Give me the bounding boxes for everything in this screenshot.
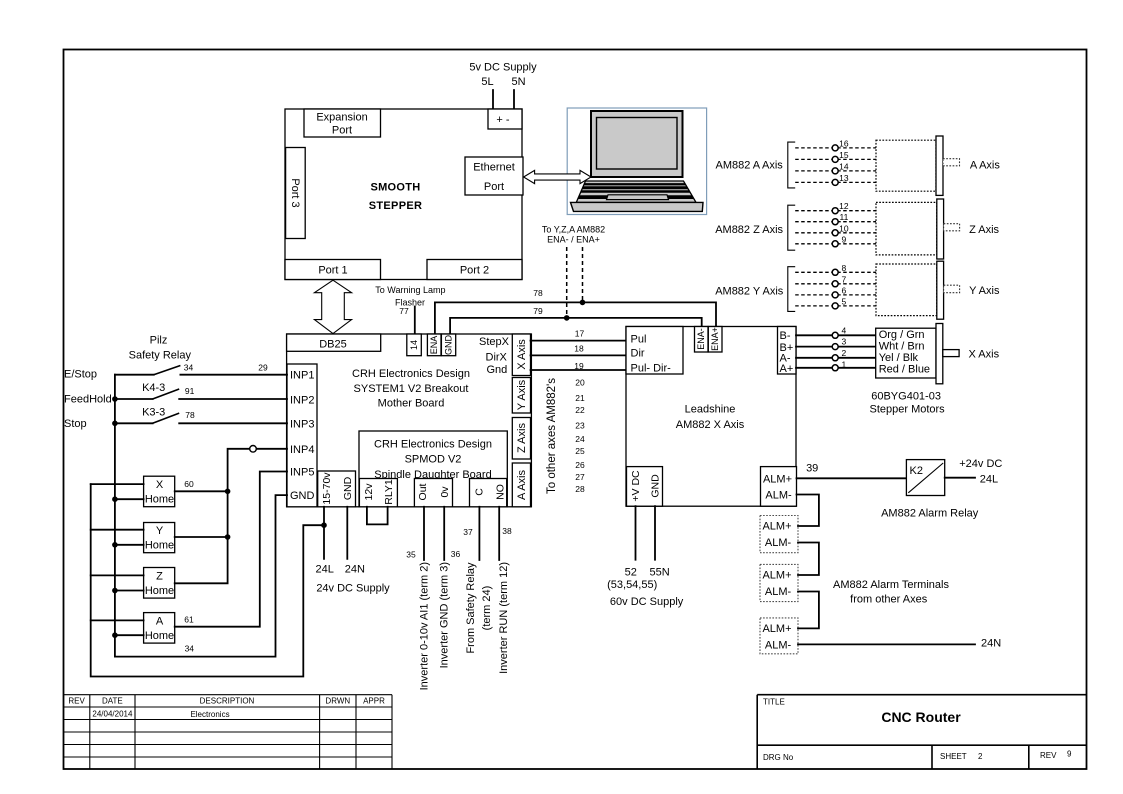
svg-text:Home: Home — [145, 494, 174, 506]
svg-text:E/Stop: E/Stop — [64, 369, 97, 381]
svg-text:60BYG401-03: 60BYG401-03 — [871, 390, 941, 402]
svg-text:10: 10 — [839, 223, 849, 233]
svg-text:CRH Electronics Design: CRH Electronics Design — [374, 439, 492, 451]
svg-text:Y Axis: Y Axis — [969, 285, 1000, 297]
svg-text:AM882 Y Axis: AM882 Y Axis — [715, 285, 784, 297]
svg-text:25: 25 — [575, 446, 585, 456]
svg-text:24L: 24L — [316, 564, 334, 576]
svg-text:ALM-: ALM- — [765, 639, 792, 651]
svg-text:ALM+: ALM+ — [762, 570, 791, 582]
svg-text:37: 37 — [463, 527, 473, 537]
svg-text:(term 24): (term 24) — [481, 586, 493, 631]
svg-text:DB25: DB25 — [319, 338, 347, 350]
svg-text:Z Axis: Z Axis — [516, 423, 528, 453]
svg-text:12: 12 — [839, 201, 849, 211]
svg-text:Port 2: Port 2 — [460, 265, 489, 277]
svg-text:34: 34 — [185, 644, 195, 654]
svg-text:To Warning Lamp: To Warning Lamp — [375, 285, 445, 295]
svg-text:7: 7 — [842, 274, 847, 284]
svg-text:A: A — [156, 615, 164, 627]
svg-text:18: 18 — [574, 343, 584, 353]
svg-text:29: 29 — [258, 363, 268, 373]
svg-text:4: 4 — [842, 325, 847, 335]
svg-text:GND: GND — [342, 476, 354, 500]
svg-text:0v: 0v — [439, 486, 451, 498]
svg-text:34: 34 — [184, 362, 194, 372]
svg-text:3: 3 — [842, 337, 847, 347]
svg-text:DRG No: DRG No — [763, 753, 794, 762]
svg-text:REV: REV — [68, 697, 85, 706]
svg-text:ALM-: ALM- — [765, 490, 792, 502]
svg-text:GND: GND — [444, 335, 454, 356]
svg-text:78: 78 — [533, 288, 543, 298]
svg-text:+V DC: +V DC — [630, 470, 642, 502]
svg-text:B-: B- — [780, 330, 791, 342]
svg-text:APPR: APPR — [363, 697, 385, 706]
svg-text:Home: Home — [145, 630, 174, 642]
svg-text:SMOOTH: SMOOTH — [370, 182, 420, 194]
svg-text:from other Axes: from other Axes — [850, 594, 928, 606]
svg-text:13: 13 — [839, 173, 849, 183]
svg-text:Pul- Dir-: Pul- Dir- — [631, 363, 672, 375]
svg-text:9: 9 — [842, 234, 847, 244]
svg-text:NO: NO — [494, 484, 506, 500]
svg-text:5L: 5L — [481, 76, 493, 88]
svg-text:2: 2 — [978, 752, 983, 761]
svg-text:5N: 5N — [511, 76, 525, 88]
svg-text:91: 91 — [185, 386, 195, 396]
svg-text:X: X — [156, 479, 164, 491]
svg-text:DRWN: DRWN — [325, 697, 350, 706]
svg-text:CRH Electronics Design: CRH Electronics Design — [352, 368, 470, 380]
svg-text:24v DC Supply: 24v DC Supply — [316, 583, 390, 595]
svg-text:Org / Grn: Org / Grn — [879, 329, 925, 341]
svg-text:6: 6 — [842, 285, 847, 295]
svg-text:11: 11 — [839, 212, 848, 222]
svg-text:5v DC Supply: 5v DC Supply — [469, 62, 537, 74]
svg-text:61: 61 — [184, 615, 194, 625]
svg-text:K4-3: K4-3 — [142, 382, 165, 394]
svg-text:DirX: DirX — [486, 352, 508, 364]
svg-text:CNC Router: CNC Router — [881, 709, 961, 725]
svg-text:AM882 Alarm Terminals: AM882 Alarm Terminals — [833, 579, 949, 591]
svg-text:ALM+: ALM+ — [763, 474, 792, 486]
svg-text:Port 1: Port 1 — [318, 265, 347, 277]
svg-text:GND: GND — [650, 474, 662, 498]
svg-text:27: 27 — [575, 472, 585, 482]
svg-text:ALM+: ALM+ — [762, 521, 791, 533]
svg-text:1: 1 — [842, 360, 847, 370]
svg-text:Red / Blue: Red / Blue — [879, 364, 930, 376]
svg-text:AM882 Z Axis: AM882 Z Axis — [715, 224, 783, 236]
svg-text:39: 39 — [806, 463, 818, 475]
svg-text:28: 28 — [575, 484, 585, 494]
svg-text:SPMOD V2: SPMOD V2 — [405, 454, 462, 466]
svg-text:StepX: StepX — [479, 336, 510, 348]
svg-text:Expansion: Expansion — [316, 112, 367, 124]
svg-text:ENA-: ENA- — [696, 328, 706, 350]
svg-text:79: 79 — [533, 306, 543, 316]
svg-text:GND: GND — [290, 490, 315, 502]
svg-text:INP1: INP1 — [290, 370, 314, 382]
svg-text:C: C — [474, 488, 486, 496]
svg-text:REV: REV — [1040, 751, 1057, 760]
svg-text:INP5: INP5 — [290, 467, 314, 479]
svg-text:Y: Y — [156, 525, 164, 537]
svg-text:77: 77 — [399, 306, 409, 316]
svg-text:55N: 55N — [650, 566, 670, 578]
svg-text:ALM-: ALM- — [765, 537, 792, 549]
svg-text:Mother Board: Mother Board — [378, 398, 445, 410]
svg-text:A Axis: A Axis — [970, 159, 1000, 171]
svg-text:+ -: + - — [496, 114, 509, 126]
svg-text:24: 24 — [575, 434, 585, 444]
svg-text:Out: Out — [417, 483, 429, 500]
svg-text:60: 60 — [184, 479, 194, 489]
svg-text:Inverter GND (term 3): Inverter GND (term 3) — [439, 562, 451, 668]
svg-text:X Axis: X Axis — [516, 339, 528, 370]
svg-text:Port: Port — [484, 181, 504, 193]
svg-text:TITLE: TITLE — [763, 698, 785, 707]
svg-text:14: 14 — [409, 340, 419, 350]
svg-text:26: 26 — [575, 460, 585, 470]
svg-text:Home: Home — [145, 585, 174, 597]
svg-text:Gnd: Gnd — [487, 364, 508, 376]
svg-text:ALM+: ALM+ — [762, 623, 791, 635]
svg-text:24N: 24N — [981, 638, 1001, 650]
svg-text:16: 16 — [839, 138, 849, 148]
svg-text:Safety Relay: Safety Relay — [129, 350, 192, 362]
svg-text:17: 17 — [575, 328, 585, 338]
svg-text:22: 22 — [575, 405, 585, 415]
svg-text:To other axes AM882's: To other axes AM882's — [546, 378, 558, 494]
svg-text:24L: 24L — [980, 473, 998, 485]
svg-text:(53,54,55): (53,54,55) — [607, 579, 657, 591]
svg-text:Inverter 0-10v AI1 (term 2): Inverter 0-10v AI1 (term 2) — [419, 562, 431, 690]
svg-text:ENA+: ENA+ — [710, 327, 720, 351]
svg-text:36: 36 — [451, 549, 461, 559]
svg-text:Y Axis: Y Axis — [516, 379, 528, 410]
svg-text:DATE: DATE — [102, 697, 123, 706]
svg-text:K2: K2 — [910, 465, 923, 477]
svg-text:Leadshine: Leadshine — [685, 404, 736, 416]
svg-text:AM882 A Axis: AM882 A Axis — [716, 159, 784, 171]
svg-text:20: 20 — [575, 378, 585, 388]
svg-text:Wht / Brn: Wht / Brn — [879, 341, 925, 353]
svg-text:Dir: Dir — [631, 348, 645, 360]
svg-text:K3-3: K3-3 — [142, 406, 165, 418]
svg-text:ALM-: ALM- — [765, 586, 792, 598]
svg-text:23: 23 — [575, 420, 585, 430]
svg-text:Z Axis: Z Axis — [969, 224, 999, 236]
svg-text:From Safety Relay: From Safety Relay — [465, 562, 477, 654]
svg-text:Pul: Pul — [631, 334, 647, 346]
svg-text:DESCRIPTION: DESCRIPTION — [200, 697, 255, 706]
svg-text:Z: Z — [156, 570, 163, 582]
svg-text:FeedHold: FeedHold — [64, 394, 112, 406]
svg-text:5: 5 — [842, 296, 847, 306]
svg-text:21: 21 — [575, 393, 585, 403]
svg-text:15-70v: 15-70v — [321, 472, 333, 505]
svg-text:19: 19 — [574, 361, 584, 371]
svg-text:9: 9 — [1067, 750, 1072, 759]
svg-text:AM882 Alarm Relay: AM882 Alarm Relay — [881, 508, 979, 520]
svg-text:15: 15 — [839, 150, 849, 160]
svg-text:INP3: INP3 — [290, 419, 314, 431]
svg-text:35: 35 — [406, 550, 416, 560]
svg-text:12v: 12v — [363, 483, 375, 501]
svg-text:A Axis: A Axis — [516, 470, 528, 500]
svg-text:52: 52 — [625, 566, 637, 578]
svg-text:To Y,Z,A AM882: To Y,Z,A AM882 — [542, 224, 605, 234]
svg-text:38: 38 — [502, 526, 512, 536]
svg-text:Port: Port — [332, 125, 352, 137]
svg-text:X Axis: X Axis — [969, 348, 1000, 360]
svg-text:8: 8 — [842, 263, 847, 273]
svg-text:ENA- / ENA+: ENA- / ENA+ — [547, 234, 600, 244]
svg-text:Yel / Blk: Yel / Blk — [879, 352, 919, 364]
svg-text:A+: A+ — [780, 363, 794, 375]
svg-text:Inverter RUN (term 12): Inverter RUN (term 12) — [498, 562, 510, 674]
svg-text:Port 3: Port 3 — [289, 178, 301, 207]
svg-text:INP4: INP4 — [290, 444, 314, 456]
svg-text:AM882 X Axis: AM882 X Axis — [676, 419, 745, 431]
svg-text:RLY1: RLY1 — [383, 479, 395, 505]
svg-text:Pilz: Pilz — [150, 335, 168, 347]
svg-text:+24v DC: +24v DC — [959, 458, 1002, 470]
svg-text:78: 78 — [185, 410, 195, 420]
svg-text:INP2: INP2 — [290, 395, 314, 407]
svg-text:STEPPER: STEPPER — [369, 200, 422, 212]
svg-text:Stepper Motors: Stepper Motors — [869, 403, 945, 415]
svg-text:Stop: Stop — [64, 418, 87, 430]
svg-text:ENA: ENA — [429, 336, 439, 355]
svg-text:24N: 24N — [345, 564, 365, 576]
svg-text:Electronics: Electronics — [190, 710, 229, 719]
svg-text:SYSTEM1 V2 Breakout: SYSTEM1 V2 Breakout — [354, 383, 469, 395]
svg-text:60v DC Supply: 60v DC Supply — [610, 596, 684, 608]
svg-text:Home: Home — [145, 540, 174, 552]
svg-text:14: 14 — [839, 161, 849, 171]
svg-text:SHEET: SHEET — [940, 752, 967, 761]
svg-text:24/04/2014: 24/04/2014 — [92, 710, 133, 719]
svg-text:2: 2 — [842, 348, 847, 358]
svg-text:Ethernet: Ethernet — [473, 162, 515, 174]
